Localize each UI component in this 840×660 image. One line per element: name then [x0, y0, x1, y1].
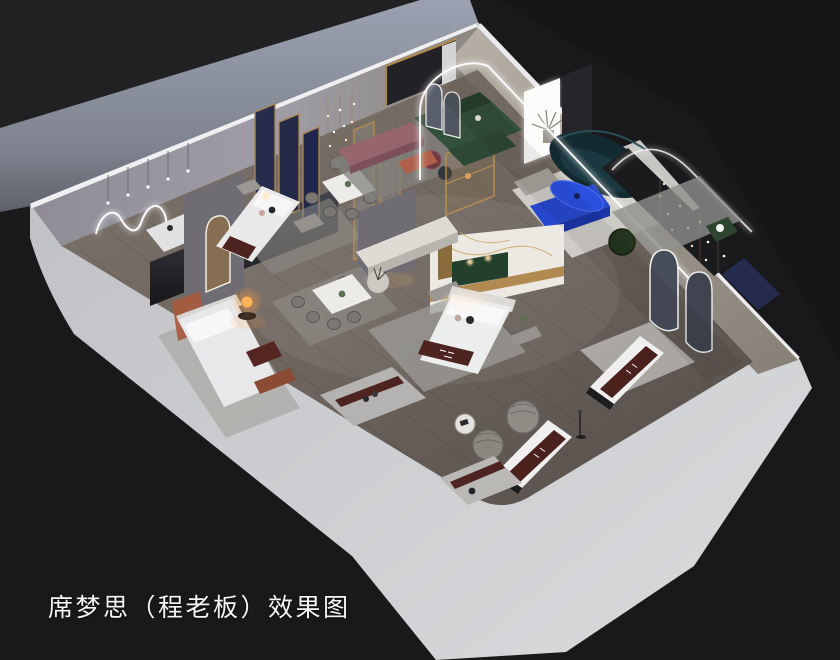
table-plant [339, 291, 346, 298]
pedestal-table [367, 271, 389, 293]
bed-upper-cushion-pink [259, 210, 265, 216]
bed-headlight-glow [444, 292, 488, 308]
marble-gold-post [438, 244, 452, 280]
render-stage: 席梦思（程老板）效果图 [0, 0, 840, 660]
bed-upper-headlight [262, 192, 270, 200]
bed-upper-cushion [269, 207, 276, 214]
showroom-render [0, 0, 840, 660]
wall-light-warm [467, 259, 473, 265]
armchair-pillow [716, 224, 724, 232]
arch-mirror-lit [206, 216, 230, 292]
table-plant [345, 181, 351, 187]
back-room-bed-cushion [167, 225, 173, 231]
case-vase [465, 173, 471, 179]
caption: 席梦思（程老板）效果图 [48, 588, 351, 624]
door-leaf [442, 41, 456, 85]
display-bag [469, 488, 476, 495]
bedside-plant [521, 315, 528, 322]
wall-light-warm [485, 255, 491, 261]
bed-center-cushion [466, 316, 474, 324]
bed-center-cushion-pink [455, 315, 462, 322]
